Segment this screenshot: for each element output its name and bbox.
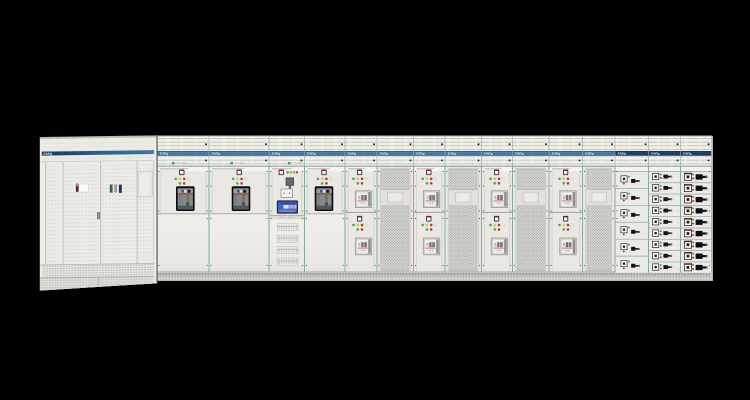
svg-text:›: › xyxy=(645,196,646,200)
svg-text:›: › xyxy=(645,247,646,251)
svg-text:EAElg: EAElg xyxy=(416,152,425,156)
svg-text:EAElg: EAElg xyxy=(618,152,627,156)
svg-text:EAElg: EAElg xyxy=(683,152,692,156)
svg-text:›: › xyxy=(645,264,646,268)
svg-text:EAElg: EAElg xyxy=(160,152,169,156)
svg-text:EAElg: EAElg xyxy=(272,152,281,156)
svg-text:EAElg: EAElg xyxy=(212,152,221,156)
svg-text:›: › xyxy=(645,213,646,217)
svg-text:›: › xyxy=(645,179,646,183)
svg-text:EAElg: EAElg xyxy=(515,152,524,156)
svg-text:EAElg: EAElg xyxy=(448,152,457,156)
svg-text:EAElg: EAElg xyxy=(348,152,357,156)
svg-text:EAElg: EAElg xyxy=(43,152,52,156)
svg-text:EAElg: EAElg xyxy=(651,152,660,156)
svg-text:EAElg: EAElg xyxy=(552,152,561,156)
svg-text:EAElg: EAElg xyxy=(307,152,316,156)
svg-text:EAElg: EAElg xyxy=(380,152,389,156)
svg-text:›: › xyxy=(645,230,646,234)
svg-text:EAElg: EAElg xyxy=(585,152,594,156)
svg-text:EAElg: EAElg xyxy=(484,152,493,156)
